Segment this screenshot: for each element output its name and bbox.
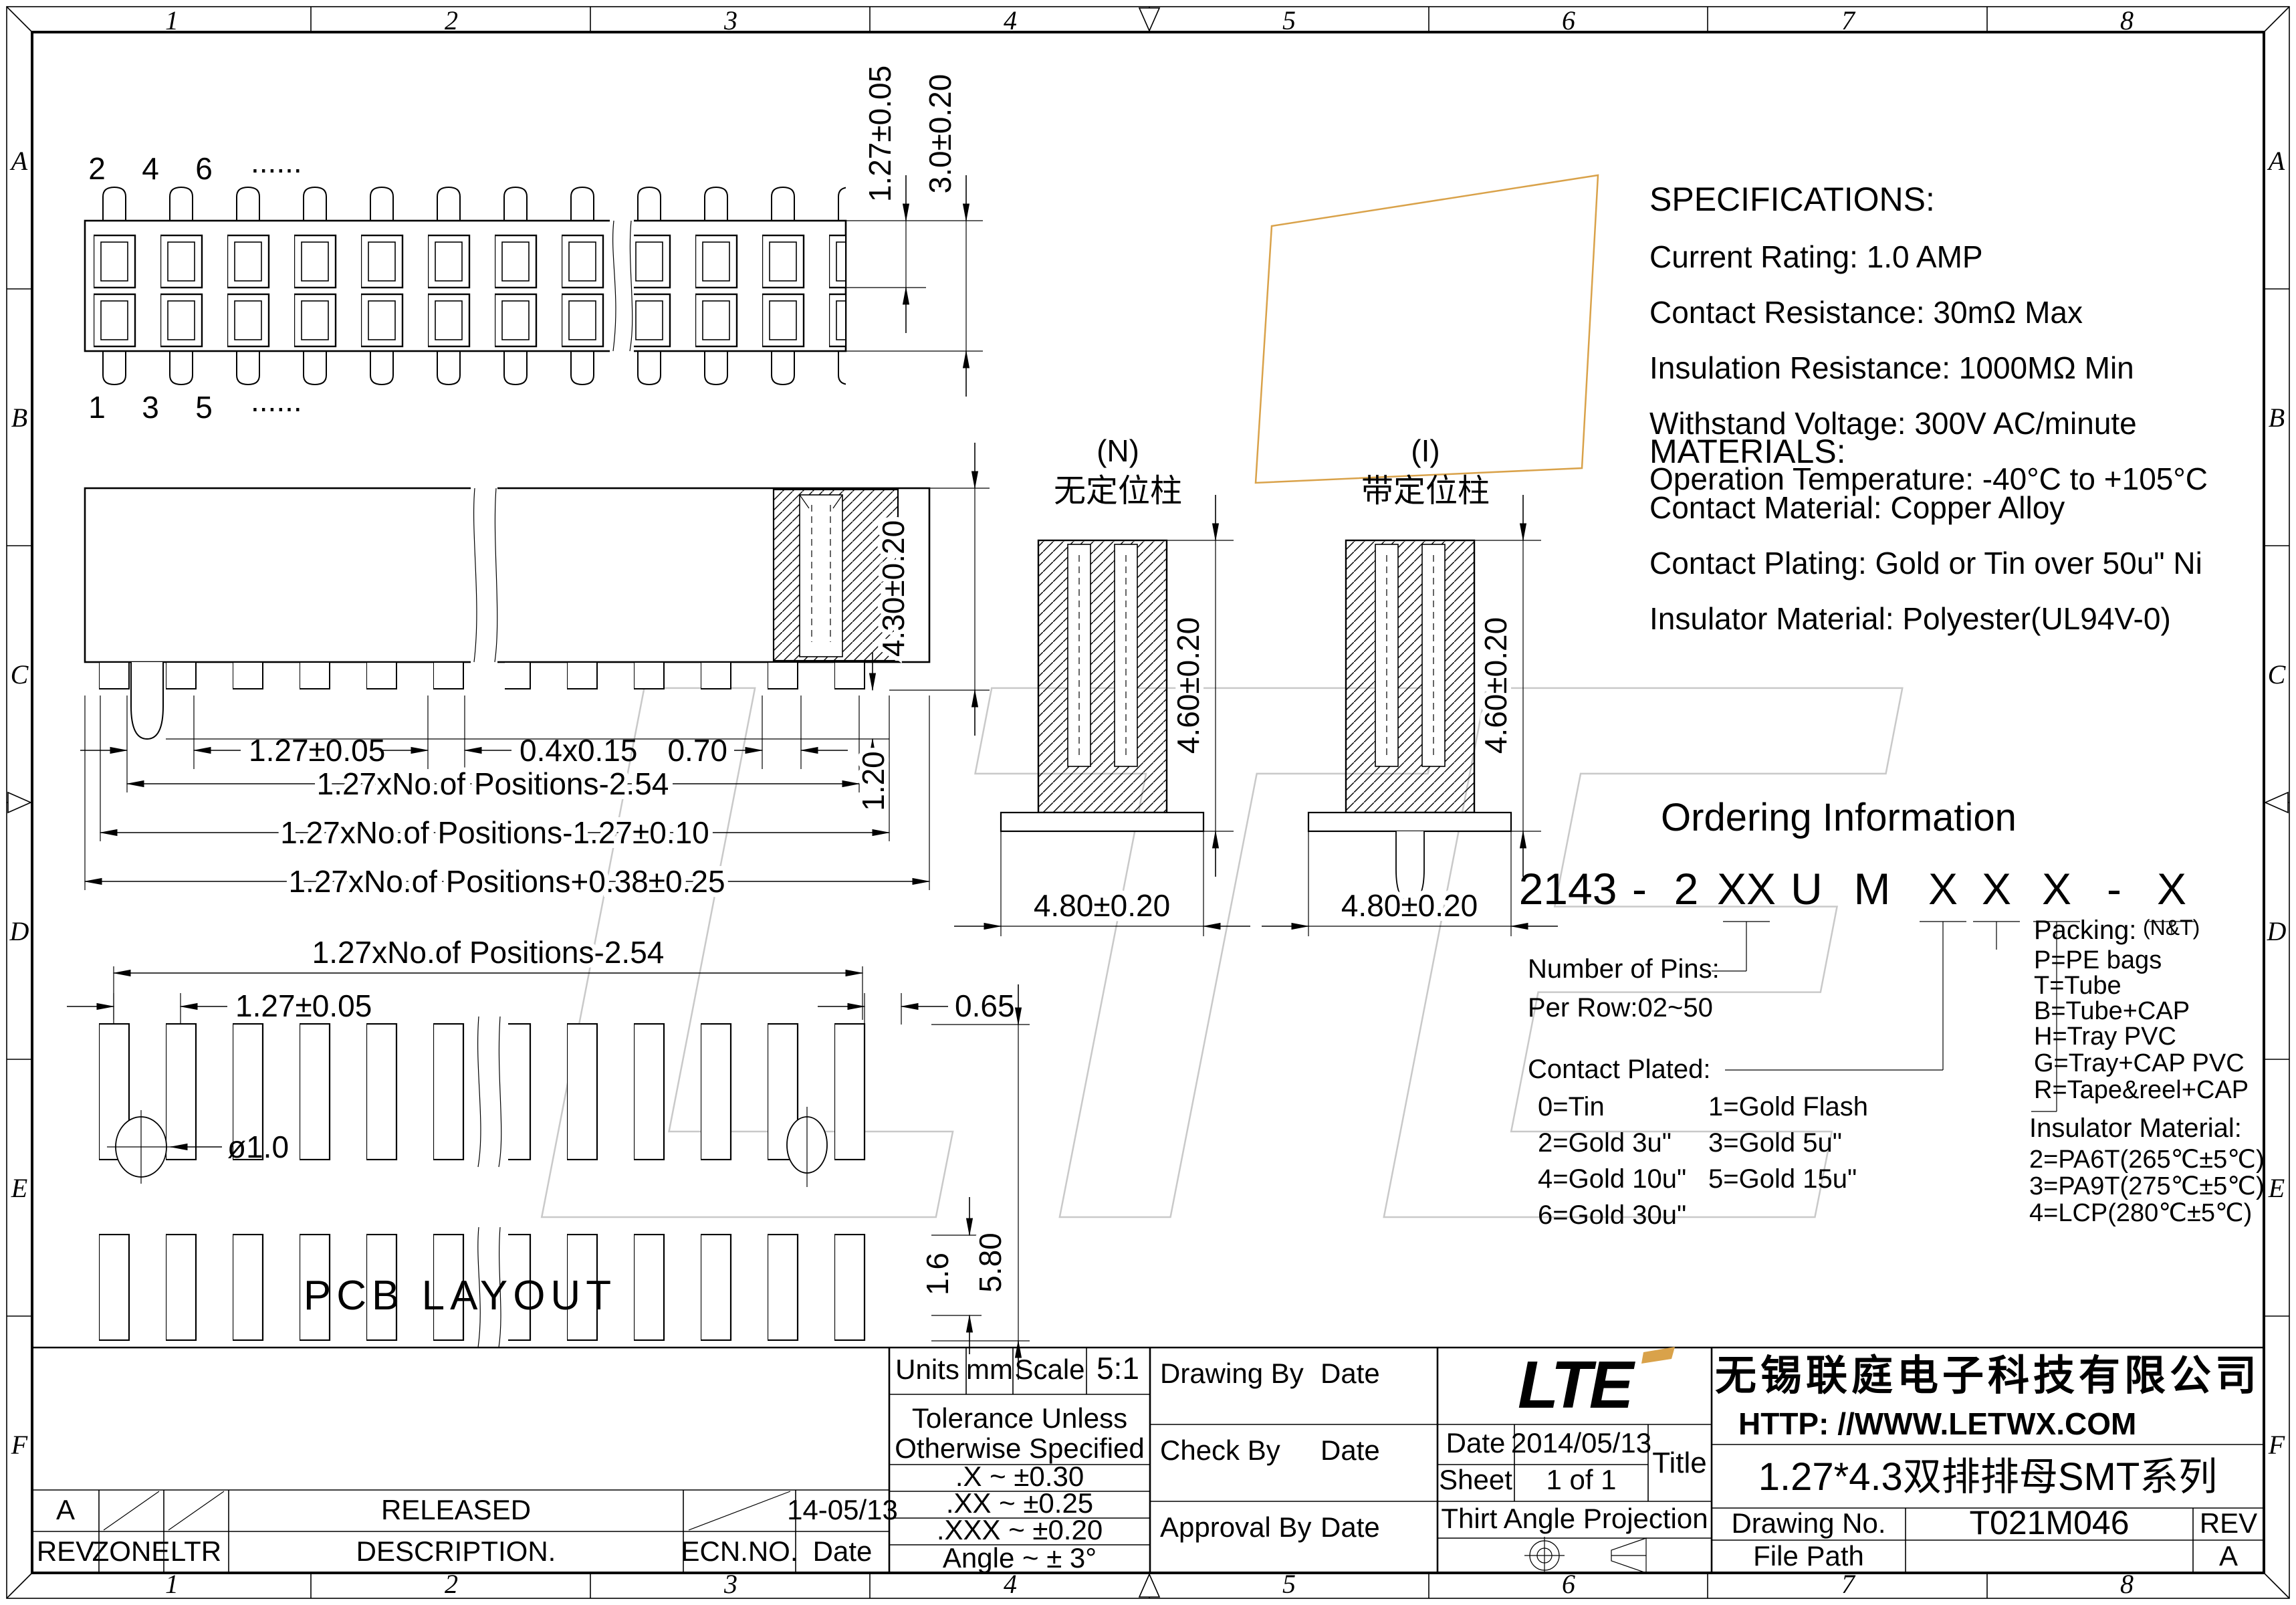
check-by-label: Check By — [1160, 1434, 1280, 1466]
zone-row-label: D — [9, 916, 29, 946]
pin-number: 2 — [88, 151, 106, 186]
pins-label: Number of Pins: — [1528, 954, 1720, 984]
tolerance-row: .XXX ~ ±0.20 — [937, 1514, 1103, 1545]
packing-option: H=Tray PVC — [2034, 1023, 2176, 1051]
rev-label: REV — [2200, 1507, 2257, 1539]
scale-value: 5:1 — [1097, 1351, 1139, 1386]
break-gap — [471, 483, 497, 695]
date-value: 2014/05/13 — [1511, 1427, 1651, 1459]
third-angle-projection-icon — [1524, 1537, 1646, 1574]
units-label: Units — [895, 1354, 959, 1385]
dim-total-height: 5.80 — [973, 1233, 1008, 1293]
packing-option: G=Tray+CAP PVC — [2034, 1049, 2245, 1077]
locating-leg — [131, 662, 163, 739]
date-label: Date — [1321, 1511, 1380, 1543]
drawing-sheet: LTE 1 2 3 4 5 6 7 8 1 2 3 4 5 6 7 8 A B … — [0, 0, 2296, 1605]
doc-info-block: LTE Date 2014/05/13 Sheet 1 of 1 Title T… — [1438, 1347, 1712, 1574]
dim-chain-1: 1.27xNo.of Positions-2.54 — [317, 766, 669, 801]
dim-section-width: 4.80±0.20 — [1034, 888, 1170, 923]
projection-label: Thirt Angle Projection — [1441, 1503, 1708, 1534]
pn-token: X — [2157, 864, 2186, 914]
dim-height: 4.30±0.20 — [876, 520, 911, 657]
tolerance-note-line1: Tolerance Unless — [912, 1402, 1127, 1434]
pin-number: 1 — [88, 390, 106, 425]
pin-number: 4 — [142, 151, 159, 186]
packing-option: T=Tube — [2034, 972, 2121, 1000]
dim-pad-height: 1.6 — [920, 1253, 955, 1295]
zone-col-label: 6 — [1562, 5, 1575, 35]
zone-col-label: 2 — [445, 5, 458, 35]
revision-header: LTR — [170, 1535, 221, 1567]
zone-col-label: 2 — [445, 1569, 458, 1599]
packing-label: Packing: — [2034, 916, 2136, 945]
date-label: Date — [1321, 1358, 1380, 1389]
tolerance-row: Angle ~ ± 3° — [943, 1542, 1097, 1574]
section-n-tag: (N) — [1097, 433, 1139, 468]
plating-option: 0=Tin — [1538, 1092, 1605, 1121]
approval-by-label: Approval By — [1160, 1511, 1311, 1543]
pn-token: - — [2107, 864, 2121, 914]
zone-col-label: 5 — [1282, 5, 1296, 35]
company-name: 无锡联庭电子科技有限公司 — [1715, 1353, 2261, 1399]
zone-col-label: 1 — [165, 5, 179, 35]
plating-option: 3=Gold 5u" — [1708, 1128, 1842, 1158]
zone-col-label: 3 — [723, 5, 737, 35]
zone-row-label: F — [2268, 1430, 2285, 1460]
revision-rev: A — [56, 1494, 75, 1525]
dim-section-height: 4.60±0.20 — [1171, 617, 1206, 754]
zone-col-label: 8 — [2120, 1569, 2134, 1599]
zone-col-label: 7 — [1841, 5, 1856, 35]
company-block: 无锡联庭电子科技有限公司 HTTP: //WWW.LETWX.COM 1.27*… — [1712, 1353, 2264, 1573]
file-path-label: File Path — [1753, 1540, 1864, 1572]
dim-hole-diameter: ø1.0 — [227, 1130, 289, 1164]
lte-logo: LTE — [1518, 1348, 1636, 1422]
dim-row-pitch: 1.27±0.05 — [863, 66, 897, 202]
pn-token: U — [1791, 864, 1823, 914]
section-n-label: 无定位柱 — [1054, 473, 1182, 509]
revision-header: ECN.NO. — [681, 1535, 798, 1567]
dim-pitch: 1.27±0.05 — [249, 733, 385, 768]
zone-col-label: 3 — [723, 1569, 737, 1599]
pn-token: 2 — [1674, 864, 1699, 914]
section-i-label: 带定位柱 — [1361, 473, 1490, 509]
pin-number: 3 — [142, 390, 159, 425]
pcb-layout-caption: PCB LAYOUT — [304, 1273, 616, 1319]
pn-token: XX — [1717, 864, 1776, 914]
packing-option: R=Tape&reel+CAP — [2034, 1076, 2249, 1104]
revision-header: ZONE — [92, 1535, 170, 1567]
zone-row-label: A — [9, 146, 28, 176]
pin-ellipsis: ...... — [251, 144, 302, 179]
zone-row-label: C — [11, 659, 29, 689]
company-website: HTTP: //WWW.LETWX.COM — [1738, 1406, 2136, 1441]
pn-token: X — [1982, 864, 2011, 914]
break-gap — [610, 181, 634, 391]
zone-row-label: C — [2268, 659, 2287, 689]
spec-item: Current Rating: 1.0 AMP — [1649, 239, 1983, 274]
spec-item: Contact Resistance: 30mΩ Max — [1649, 295, 2083, 330]
title-block: A RELEASED 14-05/13 REV ZONE LTR DESCRIP… — [32, 1347, 2264, 1574]
signature-block: Drawing By Date Check By Date Approval B… — [1150, 1358, 1438, 1543]
dim-pcb-chain: 1.27xNo.of Positions-2.54 — [312, 935, 665, 970]
insulator-option: 4=LCP(280℃±5℃) — [2029, 1199, 2252, 1227]
connector-top-view: 2 4 6 ...... 1 3 5 ...... 1.27±0.05 3.0±… — [85, 66, 983, 425]
zone-col-label: 7 — [1841, 1569, 1856, 1599]
pn-token: M — [1854, 864, 1891, 914]
sheet-value: 1 of 1 — [1546, 1464, 1616, 1495]
dim-chain-2: 1.27xNo.of Positions-1.27±0.10 — [280, 815, 709, 850]
material-item: Insulator Material: Polyester(UL94V-0) — [1649, 601, 2171, 636]
pins-range: Per Row:02~50 — [1528, 993, 1713, 1023]
packing-note: (N&T) — [2143, 916, 2200, 940]
zone-col-label: 4 — [1004, 5, 1017, 35]
units-value: mm — [966, 1354, 1013, 1385]
material-item: Contact Plating: Gold or Tin over 50u" N… — [1649, 546, 2202, 580]
dim-pad-size: 0.4x0.15 — [520, 733, 637, 768]
pn-token: - — [1632, 864, 1647, 914]
pn-token: X — [2042, 864, 2071, 914]
date-label: Date — [1446, 1427, 1506, 1459]
tolerance-table: Units mm Scale 5:1 Tolerance Unless Othe… — [889, 1348, 1150, 1574]
top-view-dimensions: 1.27±0.05 3.0±0.20 — [846, 66, 983, 397]
spec-item: Insulation Resistance: 1000MΩ Min — [1649, 350, 2134, 385]
scale-label: Scale — [1014, 1354, 1084, 1385]
insulator-option: 2=PA6T(265℃±5℃) — [2029, 1146, 2265, 1174]
zone-row-label: B — [11, 403, 27, 433]
tolerance-note-line2: Otherwise Specified — [895, 1432, 1145, 1464]
title-label: Title — [1652, 1447, 1707, 1479]
zone-col-label: 5 — [1282, 1569, 1296, 1599]
specifications-heading: SPECIFICATIONS: — [1649, 181, 1935, 218]
drawing-title: 1.27*4.3双排排母SMT系列 — [1758, 1455, 2218, 1499]
plating-option: 4=Gold 10u" — [1538, 1164, 1686, 1194]
dim-section-width: 4.80±0.20 — [1341, 888, 1478, 923]
dim-section-height: 4.60±0.20 — [1478, 617, 1513, 754]
materials-heading: MATERIALS: — [1649, 433, 1846, 470]
plating-option: 5=Gold 15u" — [1708, 1164, 1857, 1194]
pin-ellipsis: ...... — [251, 383, 302, 418]
dim-leg: 1.20 — [856, 751, 891, 811]
dim-gap: 0.70 — [667, 733, 727, 768]
sheet-label: Sheet — [1439, 1464, 1512, 1495]
revision-header: DESCRIPTION. — [356, 1535, 556, 1567]
pin-number: 5 — [195, 390, 213, 425]
zone-row-label: B — [2269, 403, 2285, 433]
drawing-no-value: T021M046 — [1969, 1504, 2129, 1541]
drawing-no-label: Drawing No. — [1731, 1507, 1885, 1539]
plating-label: Contact Plated: — [1528, 1055, 1711, 1084]
revision-date: 14-05/13 — [787, 1494, 898, 1525]
zone-row-label: F — [11, 1430, 28, 1460]
revision-header: REV — [37, 1535, 94, 1567]
dim-pcb-gap: 0.65 — [955, 988, 1015, 1023]
rev-value: A — [2219, 1540, 2238, 1572]
plating-option: 2=Gold 3u" — [1538, 1128, 1672, 1158]
pin-number: 6 — [195, 151, 213, 186]
zone-col-label: 1 — [165, 1569, 179, 1599]
pn-token: X — [1928, 864, 1958, 914]
dim-chain-3: 1.27xNo.of Positions+0.38±0.25 — [288, 864, 725, 899]
material-item: Contact Material: Copper Alloy — [1649, 490, 2065, 525]
section-i-tag: (I) — [1411, 433, 1440, 468]
zone-row-label: A — [2267, 146, 2285, 176]
zone-row-label: E — [11, 1173, 27, 1203]
revision-table: A RELEASED 14-05/13 REV ZONE LTR DESCRIP… — [32, 1490, 898, 1573]
packing-option: B=Tube+CAP — [2034, 997, 2190, 1025]
zone-col-label: 6 — [1562, 1569, 1575, 1599]
plating-option: 1=Gold Flash — [1708, 1092, 1868, 1121]
insulator-label: Insulator Material: — [2029, 1113, 2242, 1143]
zone-row-label: D — [2267, 916, 2287, 946]
ordering-heading: Ordering Information — [1661, 796, 2017, 839]
drawing-by-label: Drawing By — [1160, 1358, 1304, 1389]
dim-pcb-pitch: 1.27±0.05 — [235, 988, 372, 1023]
packing-option: P=PE bags — [2034, 946, 2162, 974]
revision-description: RELEASED — [381, 1494, 531, 1525]
plating-option: 6=Gold 30u" — [1538, 1200, 1686, 1230]
cad-canvas: LTE 1 2 3 4 5 6 7 8 1 2 3 4 5 6 7 8 A B … — [0, 0, 2296, 1605]
zone-row-label: E — [2268, 1173, 2285, 1203]
revision-header: Date — [813, 1535, 873, 1567]
insulator-option: 3=PA9T(275℃±5℃) — [2029, 1172, 2265, 1200]
pn-token: 2143 — [1519, 864, 1617, 914]
date-label: Date — [1321, 1434, 1380, 1466]
zone-col-label: 8 — [2120, 5, 2134, 35]
dim-body-width: 3.0±0.20 — [923, 74, 957, 194]
